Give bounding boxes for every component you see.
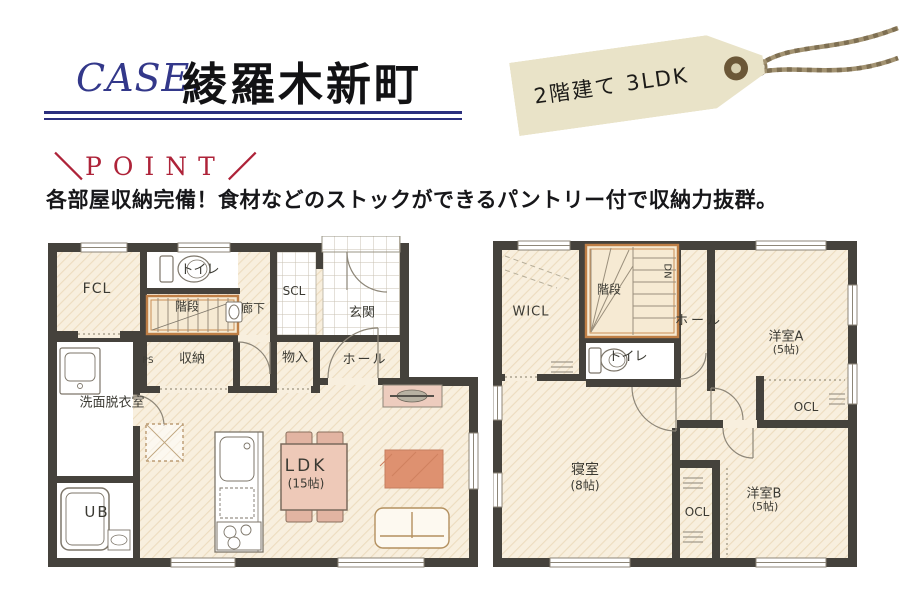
point-description: 各部屋収納完備！食材などのストックができるパントリー付で収納力抜群。	[46, 184, 876, 214]
spec-tag: 2階建て 3LDK	[509, 28, 769, 136]
washbasin-icon	[60, 348, 100, 394]
spec-tag-label: 2階建て 3LDK	[529, 38, 694, 133]
flyer-page: CASE. 綾羅木新町 ＼POINT／ 各部屋収納完備！食材などのストックができ…	[0, 0, 900, 600]
genkan-floor	[323, 252, 400, 340]
room-label-hallway: 廊下	[241, 300, 265, 317]
room-label-ocl-b: OCL	[685, 505, 710, 519]
twine-string	[740, 14, 900, 110]
room-label-hall-1f: ホール	[342, 349, 387, 368]
room-label-wicl: WICL	[512, 305, 549, 320]
room-label-washroom: 洗面脱衣室	[79, 392, 144, 411]
title-underline	[44, 111, 462, 114]
corridor-washbasin-icon	[226, 302, 242, 322]
room-label-genkan: 玄関	[349, 302, 375, 321]
point-label: POINT	[85, 152, 226, 181]
room-label-monoire: 物入	[282, 347, 308, 366]
room-label-storage: 収納	[179, 348, 205, 367]
room-label-bedroom-size: (8帖)	[571, 477, 600, 494]
room-label-room-b-size: (5帖)	[752, 498, 779, 514]
point-heading: ＼POINT／	[54, 144, 257, 186]
room-label-toilet-2f: トイレ	[608, 346, 647, 365]
room-label-hall-2f: ホール	[675, 310, 723, 329]
room-label-fcl: FCL	[83, 281, 112, 297]
porch	[322, 236, 400, 252]
tv-board-icon	[383, 385, 442, 407]
room-label-stairs-1f: 階段	[175, 298, 199, 315]
point-right-slash: ／	[228, 150, 257, 184]
room-label-stairs-2f: 階段	[597, 281, 621, 298]
room-label-ub: UB	[84, 503, 109, 521]
room-label-toilet-1f: トイレ	[180, 259, 219, 278]
room-label-ps: PS	[142, 356, 153, 366]
rug-icon	[380, 450, 443, 488]
tag-eyelet-icon	[722, 55, 749, 82]
room-label-ldk: LDK	[285, 456, 328, 476]
room-label-ocl-a: OCL	[794, 400, 819, 414]
page-title: 綾羅木新町	[182, 48, 422, 113]
point-left-slash: ＼	[54, 150, 83, 184]
sofa-icon	[375, 508, 449, 548]
room-label-room-a-size: (5帖)	[773, 341, 800, 357]
kitchen-icon	[215, 432, 263, 552]
room-label-scl: SCL	[283, 284, 306, 298]
room-label-ldk-size: (15帖)	[288, 475, 325, 492]
title-underline-2	[44, 118, 462, 120]
pantry-icon	[146, 424, 183, 461]
room-label-dn: DN	[662, 263, 673, 278]
